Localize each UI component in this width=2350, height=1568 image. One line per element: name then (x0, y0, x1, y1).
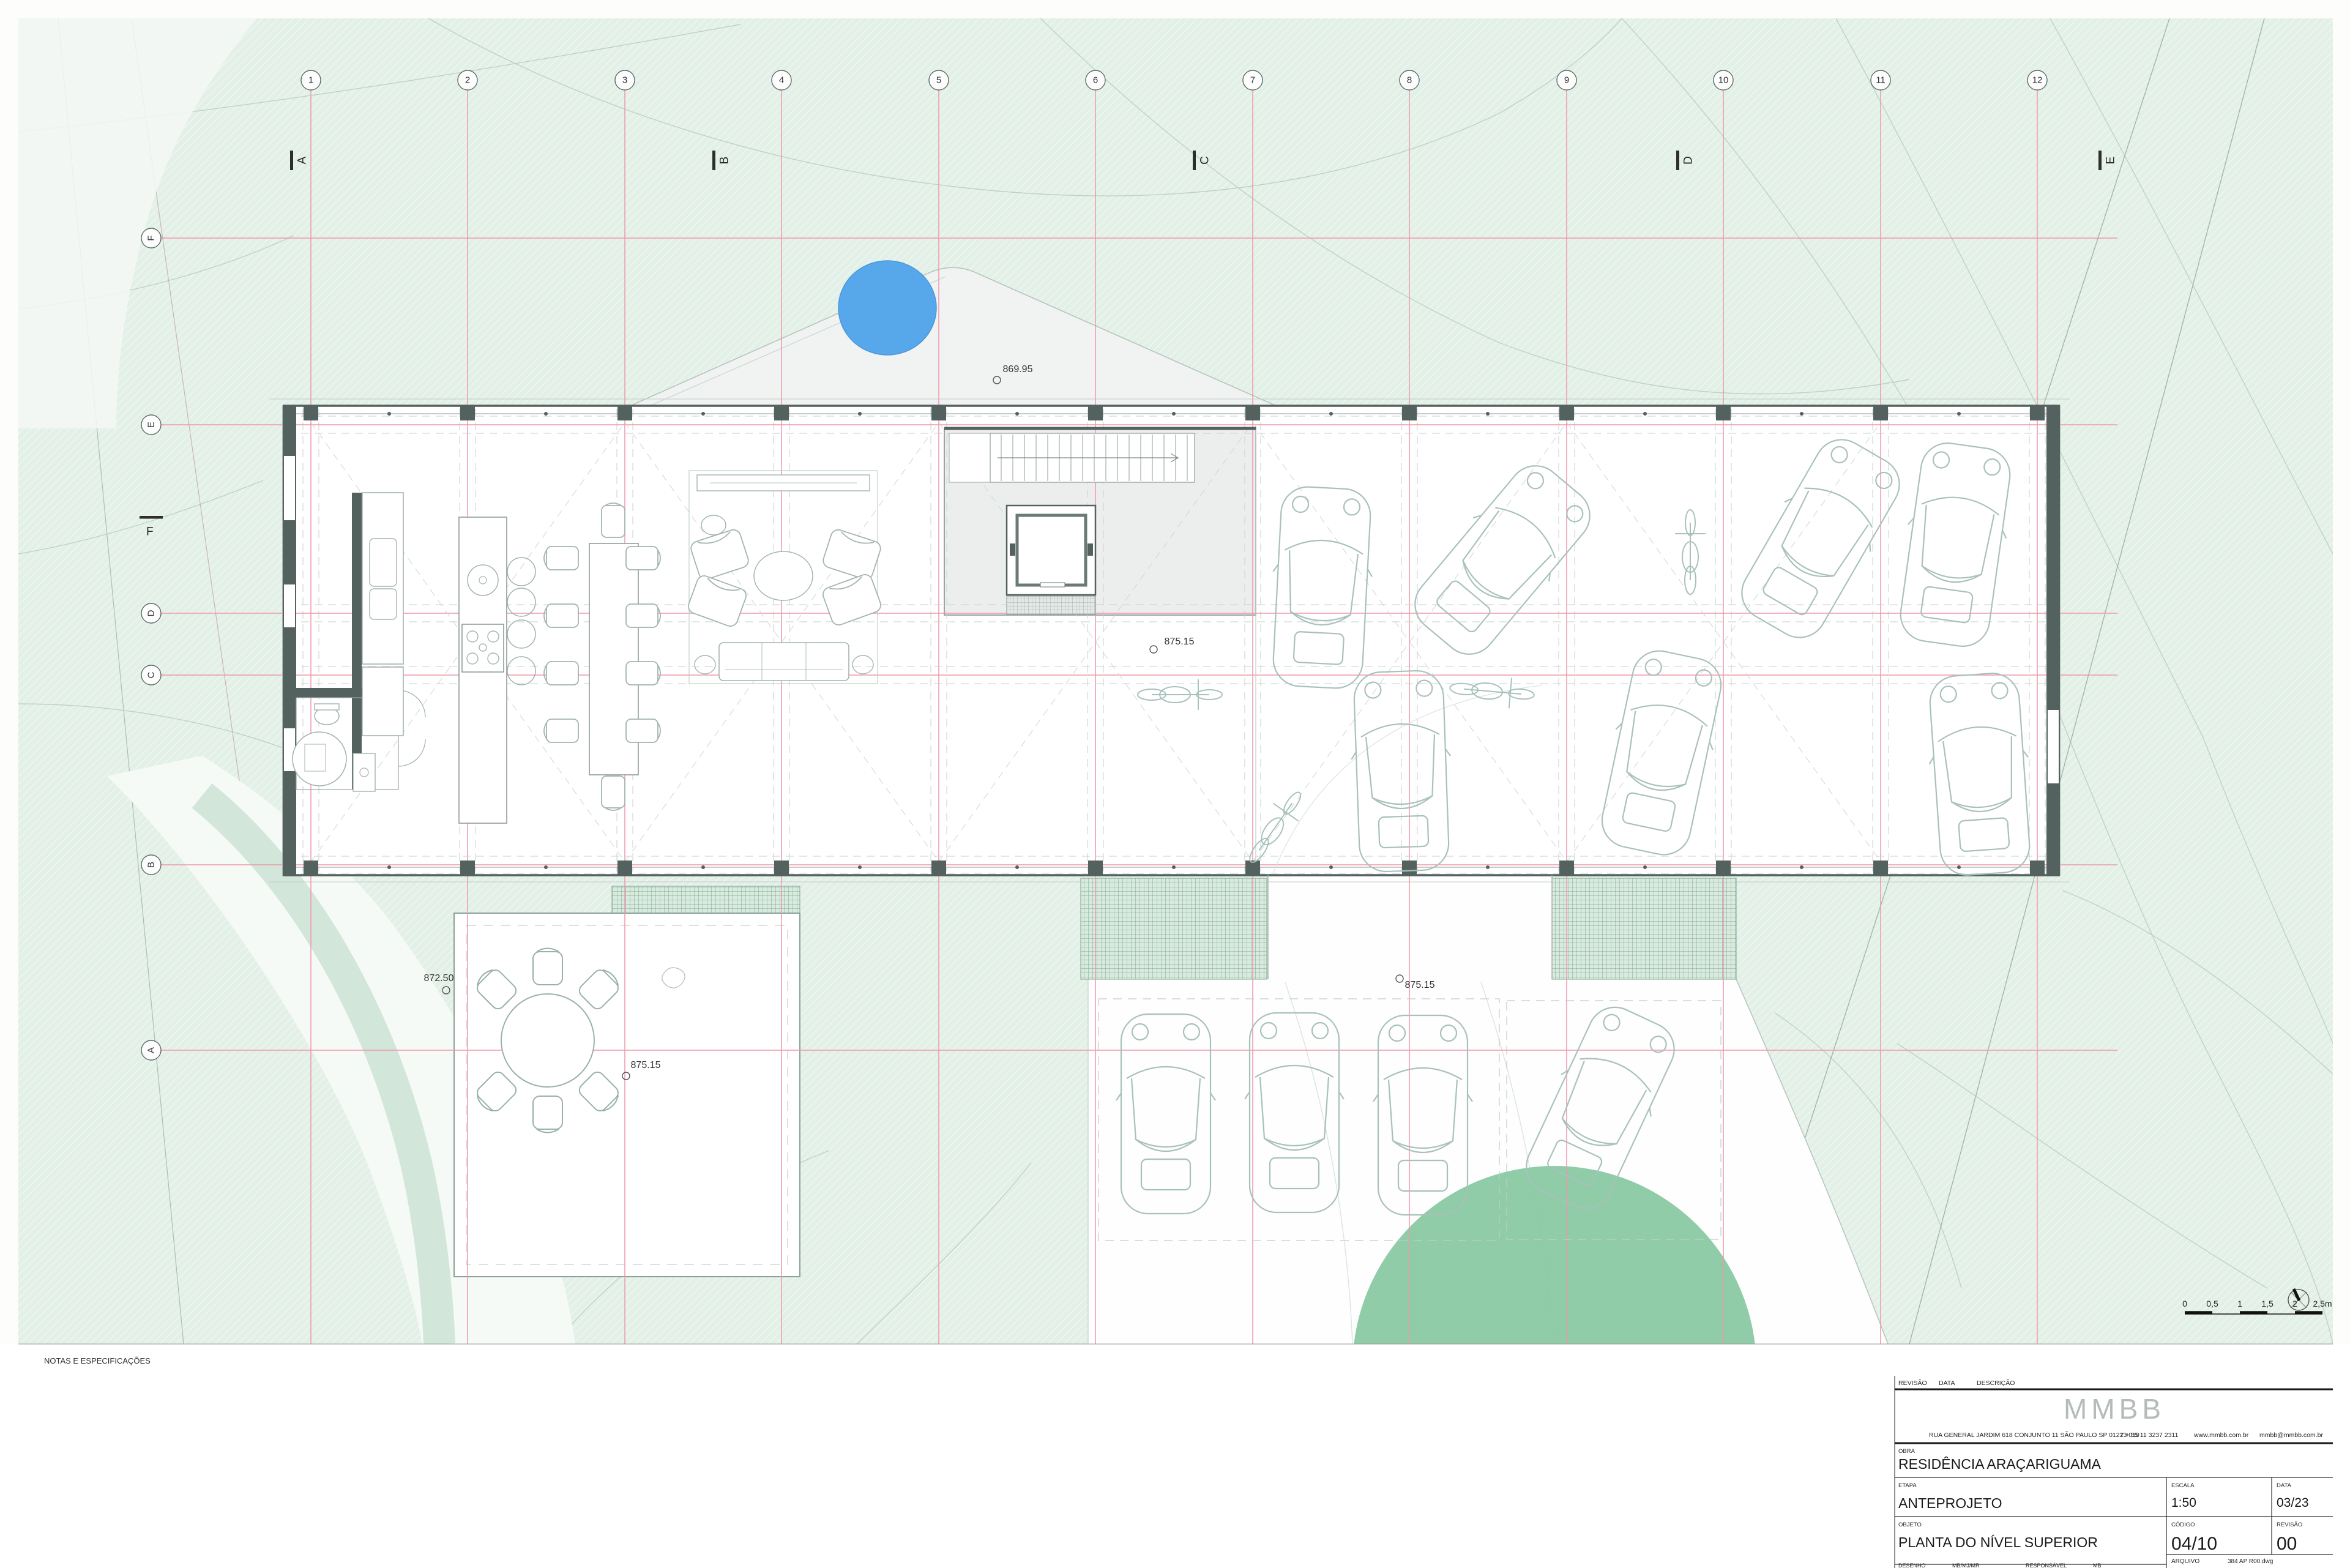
tb-email: mmbb@mmbb.com.br (2259, 1432, 2324, 1439)
mullion-dot (1486, 865, 1490, 869)
dining-chair (626, 719, 660, 742)
section-marker-bar-B (712, 151, 715, 170)
section-marker-bar-C (1193, 151, 1196, 170)
terrace-chair (533, 1096, 562, 1133)
grid-row-label-B: B (146, 862, 157, 868)
column-top-6 (1088, 406, 1103, 420)
tb-revisao-label: REVISÃO (2277, 1521, 2302, 1528)
tb-etapa-label: ETAPA (1898, 1482, 1917, 1489)
stair-landing (949, 433, 990, 482)
notes-title: NOTAS E ESPECIFICAÇÕES (44, 1356, 151, 1365)
column-top-7 (1245, 406, 1260, 420)
pond-circle (838, 261, 936, 355)
mullion-dot (701, 412, 705, 416)
mullion-dot (1486, 412, 1490, 416)
vanity (353, 753, 375, 791)
tb-responsavel: MB (2093, 1562, 2102, 1568)
grate-left (1081, 878, 1267, 979)
tb-escala-label: ESCALA (2171, 1482, 2195, 1489)
spot-elevation-text: 869.95 (1003, 364, 1033, 375)
section-marker-label-B: B (718, 157, 731, 165)
column-bottom-6 (1088, 861, 1103, 875)
column-top-4 (774, 406, 789, 420)
section-marker-label-E: E (2105, 157, 2117, 165)
dining-chair (544, 719, 578, 742)
column-bottom-5 (931, 861, 946, 875)
kitchen-cabinet (362, 667, 403, 736)
grid-column-label-5: 5 (936, 75, 941, 86)
column-top-12 (2030, 406, 2045, 420)
mullion-dot (1800, 865, 1804, 869)
window-west-1 (284, 456, 295, 520)
tb-responsavel-label: RESPONSÁVEL (2026, 1562, 2067, 1568)
floor-grille (1007, 596, 1095, 614)
kitchen-counter (362, 493, 403, 664)
mullion-dot (1329, 865, 1333, 869)
section-marker-label-A: A (296, 156, 309, 164)
wall-east (2046, 406, 2060, 875)
column-bottom-4 (774, 861, 789, 875)
sofa (719, 643, 849, 681)
dining-chair (602, 776, 625, 810)
section-marker-bar-F (140, 516, 163, 519)
mullion-dot (1015, 412, 1019, 416)
tb-objeto-label: OBJETO (1898, 1521, 1922, 1528)
tb-website: www.mmbb.com.br (2193, 1432, 2249, 1439)
grid-row-label-D: D (146, 610, 157, 616)
mullion-dot (858, 865, 862, 869)
elevator-rail-left (1010, 543, 1015, 556)
tb-objeto: PLANTA DO NÍVEL SUPERIOR (1898, 1534, 2098, 1550)
spot-elevation-text: 875.15 (1405, 980, 1435, 990)
tb-date-header: DATA (1939, 1379, 1955, 1387)
tb-etapa: ANTEPROJETO (1898, 1495, 2002, 1511)
tb-phone: T + 55 11 3237 2311 (2120, 1432, 2179, 1439)
mullion-dot (387, 412, 391, 416)
grid-column-label-2: 2 (465, 75, 470, 86)
tb-desenho: MB/MJ/MR (1952, 1562, 1980, 1568)
tb-codigo-label: CÓDIGO (2171, 1521, 2195, 1528)
tb-arquivo: 384 AP R00.dwg (2228, 1558, 2273, 1565)
column-top-5 (931, 406, 946, 420)
grid-row-label-F: F (146, 235, 157, 241)
mullion-dot (1172, 412, 1176, 416)
dining-chair (544, 604, 578, 627)
column-top-1 (304, 406, 318, 420)
scalebar-label: 2,5m (2313, 1299, 2332, 1309)
coffee-table (754, 551, 813, 600)
mullion-dot (1643, 865, 1647, 869)
dining-chair (626, 547, 660, 570)
tb-revisao: 00 (2277, 1534, 2297, 1554)
elevator-rail-right (1087, 543, 1093, 556)
tb-obra: RESIDÊNCIA ARAÇARIGUAMA (1898, 1456, 2102, 1472)
spot-elevation-text: 875.15 (1165, 637, 1195, 647)
kitchen-island (459, 517, 507, 823)
mullion-dot (1957, 412, 1961, 416)
grid-column-label-11: 11 (1876, 75, 1886, 86)
column-bottom-12 (2030, 861, 2045, 875)
tb-desenho-label: DESENHO (1898, 1562, 1926, 1568)
mullion-dot (1800, 412, 1804, 416)
scalebar-label: 0,5 (2206, 1299, 2218, 1309)
section-marker-label-D: D (1682, 156, 1695, 165)
mullion-dot (1957, 865, 1961, 869)
elevator-door (1040, 583, 1065, 587)
tb-arquivo-label: ARQUIVO (2171, 1558, 2199, 1565)
grid-column-label-10: 10 (1718, 75, 1729, 86)
mullion-dot (858, 412, 862, 416)
grid-row-label-C: C (146, 671, 157, 678)
column-top-8 (1402, 406, 1417, 420)
wall-wc-north (283, 688, 373, 698)
grid-column-label-4: 4 (779, 75, 784, 86)
column-bottom-10 (1716, 861, 1731, 875)
grate-right (1552, 878, 1736, 979)
section-marker-bar-E (2098, 151, 2102, 170)
dining-chair (602, 503, 625, 537)
grid-row-label-A: A (146, 1047, 157, 1053)
scalebar-label: 1,5 (2261, 1299, 2274, 1309)
mullion-dot (701, 865, 705, 869)
scalebar-label: 1 (2237, 1299, 2242, 1309)
section-marker-bar-D (1676, 151, 1679, 170)
column-top-9 (1559, 406, 1574, 420)
grid-column-label-8: 8 (1407, 75, 1412, 86)
column-top-10 (1716, 406, 1731, 420)
column-bottom-11 (1873, 861, 1888, 875)
section-marker-label-C: C (1199, 156, 1212, 165)
tb-data: 03/23 (2277, 1496, 2309, 1510)
tb-revision-header: REVISÃO (1898, 1379, 1927, 1387)
dining-chair (544, 662, 578, 685)
terrace-table (501, 994, 594, 1087)
mullion-dot (1329, 412, 1333, 416)
grid-column-label-9: 9 (1564, 75, 1569, 86)
terrace-chair (533, 949, 562, 985)
column-bottom-3 (617, 861, 632, 875)
mullion-dot (1015, 865, 1019, 869)
column-bottom-9 (1559, 861, 1574, 875)
toilet-tank (315, 704, 339, 710)
tb-escala: 1:50 (2171, 1496, 2196, 1510)
dining-chair (544, 547, 578, 570)
tb-logo: MMBB (2064, 1393, 2165, 1425)
mullion-dot (544, 412, 548, 416)
tb-data-label: DATA (2277, 1482, 2292, 1489)
scalebar-label: 0 (2182, 1299, 2187, 1309)
grid-column-label-1: 1 (308, 75, 313, 86)
grid-column-label-12: 12 (2032, 75, 2043, 86)
spot-elevation-text: 875.15 (631, 1060, 661, 1070)
window-west-2 (284, 584, 295, 627)
tb-obra-label: OBRA (1898, 1448, 1915, 1455)
wall-kitchen (352, 493, 362, 698)
column-bottom-2 (460, 861, 475, 875)
grid-column-label-3: 3 (622, 75, 627, 86)
tb-description-header: DESCRIÇÃO (1977, 1379, 2015, 1387)
grid-column-label-7: 7 (1250, 75, 1255, 86)
mullion-dot (1643, 412, 1647, 416)
spot-elevation-text: 872.50 (424, 973, 454, 984)
column-bottom-1 (304, 861, 318, 875)
grid-row-label-E: E (146, 422, 157, 428)
section-marker-label-F: F (146, 526, 154, 539)
grid-column-label-6: 6 (1093, 75, 1098, 86)
column-bottom-8 (1402, 861, 1417, 875)
column-top-11 (1873, 406, 1888, 420)
dining-chair (626, 662, 660, 685)
sheet-footer: NOTAS E ESPECIFICAÇÕES REVISÃO DATA DESC… (0, 1344, 2350, 1568)
floor-plan-sheet: 123456789101112FEDCBA (0, 0, 2350, 1568)
grate-strip (612, 886, 800, 913)
column-top-3 (617, 406, 632, 420)
column-top-2 (460, 406, 475, 420)
tb-codigo: 04/10 (2171, 1534, 2217, 1554)
laundry-circle (293, 732, 346, 786)
mullion-dot (1172, 865, 1176, 869)
section-marker-bar-A (290, 151, 293, 170)
mullion-dot (544, 865, 548, 869)
mullion-dot (387, 865, 391, 869)
tb-address: RUA GENERAL JARDIM 618 CONJUNTO 11 SÃO P… (1929, 1431, 2139, 1439)
elevator-car (1017, 515, 1086, 585)
window-east-1 (2048, 710, 2059, 783)
dining-chair (626, 604, 660, 627)
